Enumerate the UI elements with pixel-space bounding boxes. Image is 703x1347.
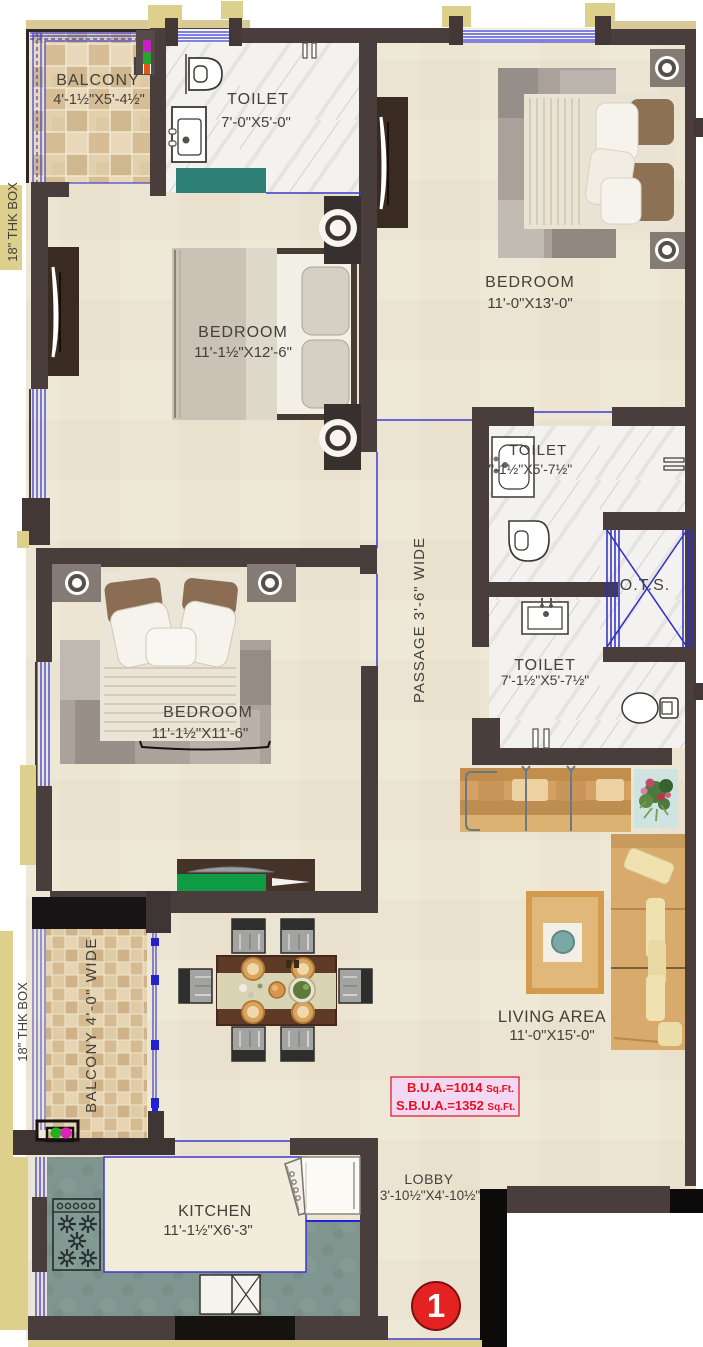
svg-text:1: 1 [427, 1287, 445, 1324]
svg-text:11'-0"X13'-0": 11'-0"X13'-0" [487, 295, 572, 312]
svg-text:11'-1½"X6'-3": 11'-1½"X6'-3" [163, 1222, 252, 1239]
svg-text:BEDROOM: BEDROOM [198, 324, 288, 341]
svg-text:BALCONY 4'-0" WIDE: BALCONY 4'-0" WIDE [83, 937, 100, 1113]
svg-text:PASSAGE 3'-6" WIDE: PASSAGE 3'-6" WIDE [411, 537, 428, 703]
svg-text:O.T.S.: O.T.S. [620, 577, 670, 594]
svg-text:TOILET: TOILET [227, 91, 289, 108]
svg-text:18" THK BOX: 18" THK BOX [15, 982, 30, 1062]
svg-text:18" THK BOX: 18" THK BOX [5, 182, 20, 262]
svg-text:11'-1½"X12'-6": 11'-1½"X12'-6" [194, 344, 292, 361]
svg-text:BALCONY: BALCONY [56, 72, 139, 89]
svg-text:BEDROOM: BEDROOM [163, 704, 253, 721]
svg-text:LOBBY: LOBBY [404, 1171, 453, 1187]
svg-text:KITCHEN: KITCHEN [178, 1203, 252, 1220]
svg-text:LIVING AREA: LIVING AREA [498, 1008, 606, 1026]
svg-text:TOILET: TOILET [509, 442, 567, 459]
svg-text:7'-1½"X5'-7½": 7'-1½"X5'-7½" [501, 672, 589, 688]
svg-text:3'-10½"X4'-10½": 3'-10½"X4'-10½" [380, 1188, 481, 1203]
svg-text:BEDROOM: BEDROOM [485, 274, 575, 291]
svg-text:11'-1½"X11'-6": 11'-1½"X11'-6" [152, 725, 249, 742]
svg-text:7'-1½"X5'-7½": 7'-1½"X5'-7½" [484, 461, 572, 477]
svg-text:11'-0"X15'-0": 11'-0"X15'-0" [509, 1027, 594, 1044]
svg-text:7'-0"X5'-0": 7'-0"X5'-0" [221, 114, 291, 131]
svg-text:4'-1½"X5'-4½": 4'-1½"X5'-4½" [53, 92, 145, 108]
